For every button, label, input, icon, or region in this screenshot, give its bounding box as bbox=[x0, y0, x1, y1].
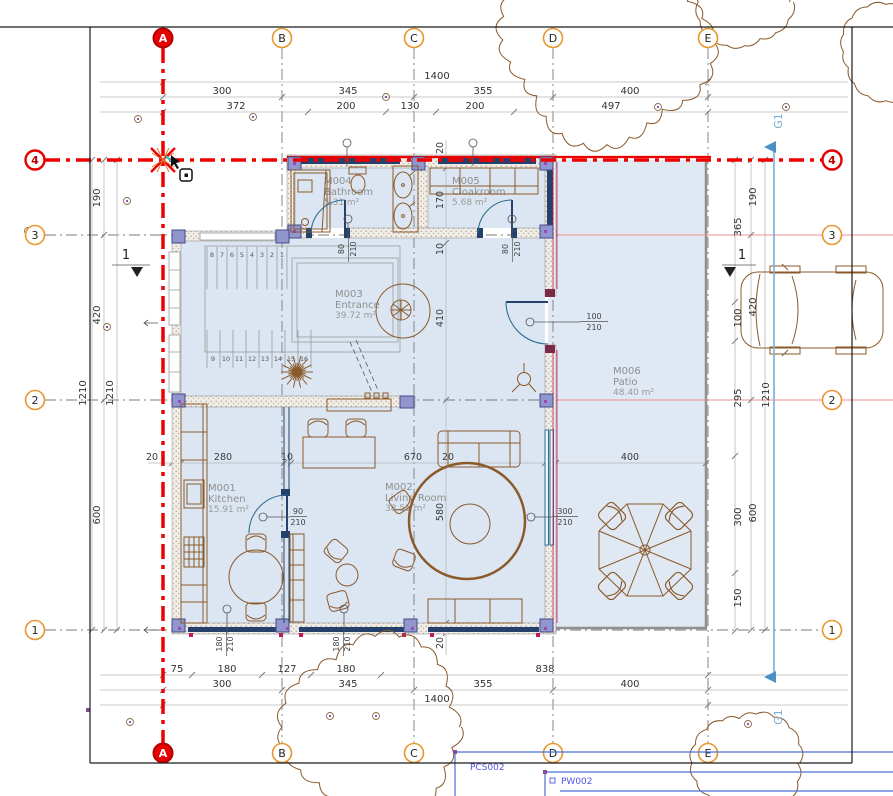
svg-text:15.91 m²: 15.91 m² bbox=[208, 505, 249, 515]
origin-marker bbox=[151, 148, 180, 172]
svg-text:M002: M002 bbox=[385, 482, 413, 493]
svg-text:4: 4 bbox=[828, 154, 836, 167]
tree-icon bbox=[841, 2, 893, 102]
svg-text:A: A bbox=[159, 32, 168, 45]
svg-text:210: 210 bbox=[513, 241, 522, 256]
svg-text:B: B bbox=[278, 32, 286, 45]
svg-text:14: 14 bbox=[274, 355, 282, 363]
g1-reference-line: G1 G1 bbox=[764, 113, 785, 725]
svg-text:B: B bbox=[278, 747, 286, 760]
svg-text:10: 10 bbox=[435, 243, 446, 255]
svg-text:170: 170 bbox=[435, 191, 446, 209]
svg-text:8: 8 bbox=[210, 251, 214, 259]
svg-text:127: 127 bbox=[277, 664, 296, 675]
svg-text:M004: M004 bbox=[324, 176, 352, 187]
svg-text:420: 420 bbox=[92, 305, 103, 324]
svg-text:Bathroom: Bathroom bbox=[324, 187, 373, 198]
svg-text:20: 20 bbox=[442, 452, 454, 463]
svg-text:E: E bbox=[705, 32, 712, 45]
svg-text:1: 1 bbox=[738, 248, 746, 263]
dim-bottom-total: 1400 bbox=[424, 694, 449, 705]
svg-text:300: 300 bbox=[212, 679, 231, 690]
svg-text:1: 1 bbox=[829, 624, 836, 637]
svg-text:210: 210 bbox=[290, 518, 305, 527]
svg-text:1210: 1210 bbox=[105, 380, 116, 405]
svg-text:1210: 1210 bbox=[761, 382, 772, 407]
svg-text:M001: M001 bbox=[208, 483, 236, 494]
svg-text:80: 80 bbox=[337, 244, 346, 254]
svg-text:600: 600 bbox=[748, 503, 759, 522]
cursor-icon bbox=[171, 155, 180, 169]
svg-text:7: 7 bbox=[220, 251, 224, 259]
svg-text:180: 180 bbox=[336, 664, 355, 675]
svg-text:345: 345 bbox=[338, 679, 357, 690]
svg-text:210: 210 bbox=[349, 241, 358, 256]
svg-text:13: 13 bbox=[261, 355, 269, 363]
svg-text:M003: M003 bbox=[335, 289, 363, 300]
svg-text:180: 180 bbox=[217, 664, 236, 675]
svg-text:410: 410 bbox=[435, 309, 446, 327]
svg-text:E: E bbox=[705, 747, 712, 760]
station-icon bbox=[180, 169, 192, 181]
svg-text:400: 400 bbox=[620, 86, 639, 97]
svg-text:210: 210 bbox=[343, 636, 352, 651]
svg-text:10: 10 bbox=[281, 452, 293, 463]
svg-text:6: 6 bbox=[230, 251, 234, 259]
svg-text:300: 300 bbox=[733, 507, 744, 526]
svg-text:3: 3 bbox=[260, 251, 264, 259]
svg-text:G1: G1 bbox=[772, 709, 785, 725]
svg-text:5: 5 bbox=[240, 251, 244, 259]
svg-text:C: C bbox=[410, 32, 418, 45]
svg-text:670: 670 bbox=[404, 452, 422, 463]
svg-text:280: 280 bbox=[214, 452, 232, 463]
svg-text:11: 11 bbox=[235, 355, 243, 363]
svg-text:1: 1 bbox=[122, 248, 130, 263]
svg-text:20: 20 bbox=[435, 637, 446, 649]
north-window bbox=[200, 233, 275, 240]
svg-text:345: 345 bbox=[338, 86, 357, 97]
grid-bubble-4-right: 4 bbox=[823, 151, 842, 170]
svg-text:A: A bbox=[159, 747, 168, 760]
svg-text:180: 180 bbox=[332, 636, 341, 651]
svg-text:4: 4 bbox=[250, 251, 254, 259]
pw-label: PW002 bbox=[561, 777, 593, 787]
section-marker-left: 1 bbox=[112, 248, 150, 277]
svg-text:90: 90 bbox=[293, 507, 303, 516]
dim-top-total: 1400 bbox=[424, 71, 449, 82]
south-window-b-size: 180 210 bbox=[332, 632, 352, 656]
svg-text:200: 200 bbox=[465, 101, 484, 112]
svg-text:48.40 m²: 48.40 m² bbox=[613, 388, 654, 398]
stair-windows bbox=[169, 252, 180, 392]
svg-text:100: 100 bbox=[586, 312, 601, 321]
svg-text:210: 210 bbox=[557, 518, 572, 527]
svg-text:497: 497 bbox=[601, 101, 620, 112]
svg-text:G1: G1 bbox=[772, 113, 785, 129]
svg-text:180: 180 bbox=[215, 636, 224, 651]
svg-text:5.68 m²: 5.68 m² bbox=[452, 198, 488, 208]
svg-text:190: 190 bbox=[92, 188, 103, 207]
svg-text:80: 80 bbox=[501, 244, 510, 254]
svg-text:200: 200 bbox=[336, 101, 355, 112]
svg-text:365: 365 bbox=[733, 217, 744, 236]
utility-notes: PCS002 PW002 bbox=[453, 750, 893, 796]
svg-text:2: 2 bbox=[32, 394, 39, 407]
svg-text:190: 190 bbox=[748, 187, 759, 206]
svg-text:580: 580 bbox=[435, 503, 446, 521]
svg-text:12: 12 bbox=[248, 355, 256, 363]
svg-text:300: 300 bbox=[212, 86, 231, 97]
tree-icon bbox=[496, 0, 718, 151]
svg-text:355: 355 bbox=[473, 86, 492, 97]
svg-text:Entrance: Entrance bbox=[335, 300, 380, 311]
svg-text:210: 210 bbox=[586, 323, 601, 332]
svg-text:100: 100 bbox=[733, 308, 744, 327]
south-window-a-size: 180 210 bbox=[215, 632, 235, 656]
svg-text:838: 838 bbox=[535, 664, 554, 675]
svg-text:1: 1 bbox=[280, 251, 284, 259]
svg-text:M005: M005 bbox=[452, 176, 480, 187]
svg-text:75: 75 bbox=[171, 664, 184, 675]
svg-text:150: 150 bbox=[733, 588, 744, 607]
svg-text:130: 130 bbox=[400, 101, 419, 112]
svg-text:16: 16 bbox=[300, 355, 308, 363]
grid-bubble-4-left: 4 bbox=[26, 151, 45, 170]
svg-text:1: 1 bbox=[32, 624, 39, 637]
svg-text:400: 400 bbox=[621, 452, 639, 463]
svg-text:D: D bbox=[549, 747, 557, 760]
svg-text:3: 3 bbox=[32, 229, 39, 242]
svg-text:D: D bbox=[549, 32, 557, 45]
svg-text:4: 4 bbox=[31, 154, 39, 167]
floor-plan-canvas: M004 Bathroom 5.31 m² M005 Cloakroom 5.6… bbox=[0, 0, 893, 796]
svg-text:600: 600 bbox=[92, 505, 103, 524]
svg-text:372: 372 bbox=[226, 101, 245, 112]
svg-text:9: 9 bbox=[211, 355, 215, 363]
svg-text:2: 2 bbox=[829, 394, 836, 407]
svg-text:1210: 1210 bbox=[78, 380, 89, 405]
pcs-label: PCS002 bbox=[470, 763, 505, 773]
svg-text:2: 2 bbox=[270, 251, 274, 259]
svg-text:210: 210 bbox=[226, 636, 235, 651]
svg-text:C: C bbox=[410, 747, 418, 760]
svg-text:20: 20 bbox=[146, 452, 158, 463]
svg-text:Patio: Patio bbox=[613, 377, 638, 388]
car-icon bbox=[741, 264, 883, 356]
svg-text:10: 10 bbox=[222, 355, 230, 363]
svg-text:355: 355 bbox=[473, 679, 492, 690]
svg-text:39.72 m²: 39.72 m² bbox=[335, 311, 376, 321]
svg-text:20: 20 bbox=[435, 142, 446, 154]
svg-text:M006: M006 bbox=[613, 366, 641, 377]
grid-bubble-A-bottom: A bbox=[154, 744, 173, 763]
svg-text:295: 295 bbox=[733, 388, 744, 407]
floor-plan-drawing: M004 Bathroom 5.31 m² M005 Cloakroom 5.6… bbox=[0, 0, 893, 796]
svg-text:3: 3 bbox=[829, 229, 836, 242]
tree-icon bbox=[277, 630, 463, 796]
svg-text:Kitchen: Kitchen bbox=[208, 494, 246, 505]
svg-text:400: 400 bbox=[620, 679, 639, 690]
svg-text:300: 300 bbox=[557, 507, 572, 516]
svg-text:5.31 m²: 5.31 m² bbox=[324, 198, 360, 208]
svg-text:420: 420 bbox=[748, 297, 759, 316]
grid-bubble-A-top: A bbox=[154, 29, 173, 48]
